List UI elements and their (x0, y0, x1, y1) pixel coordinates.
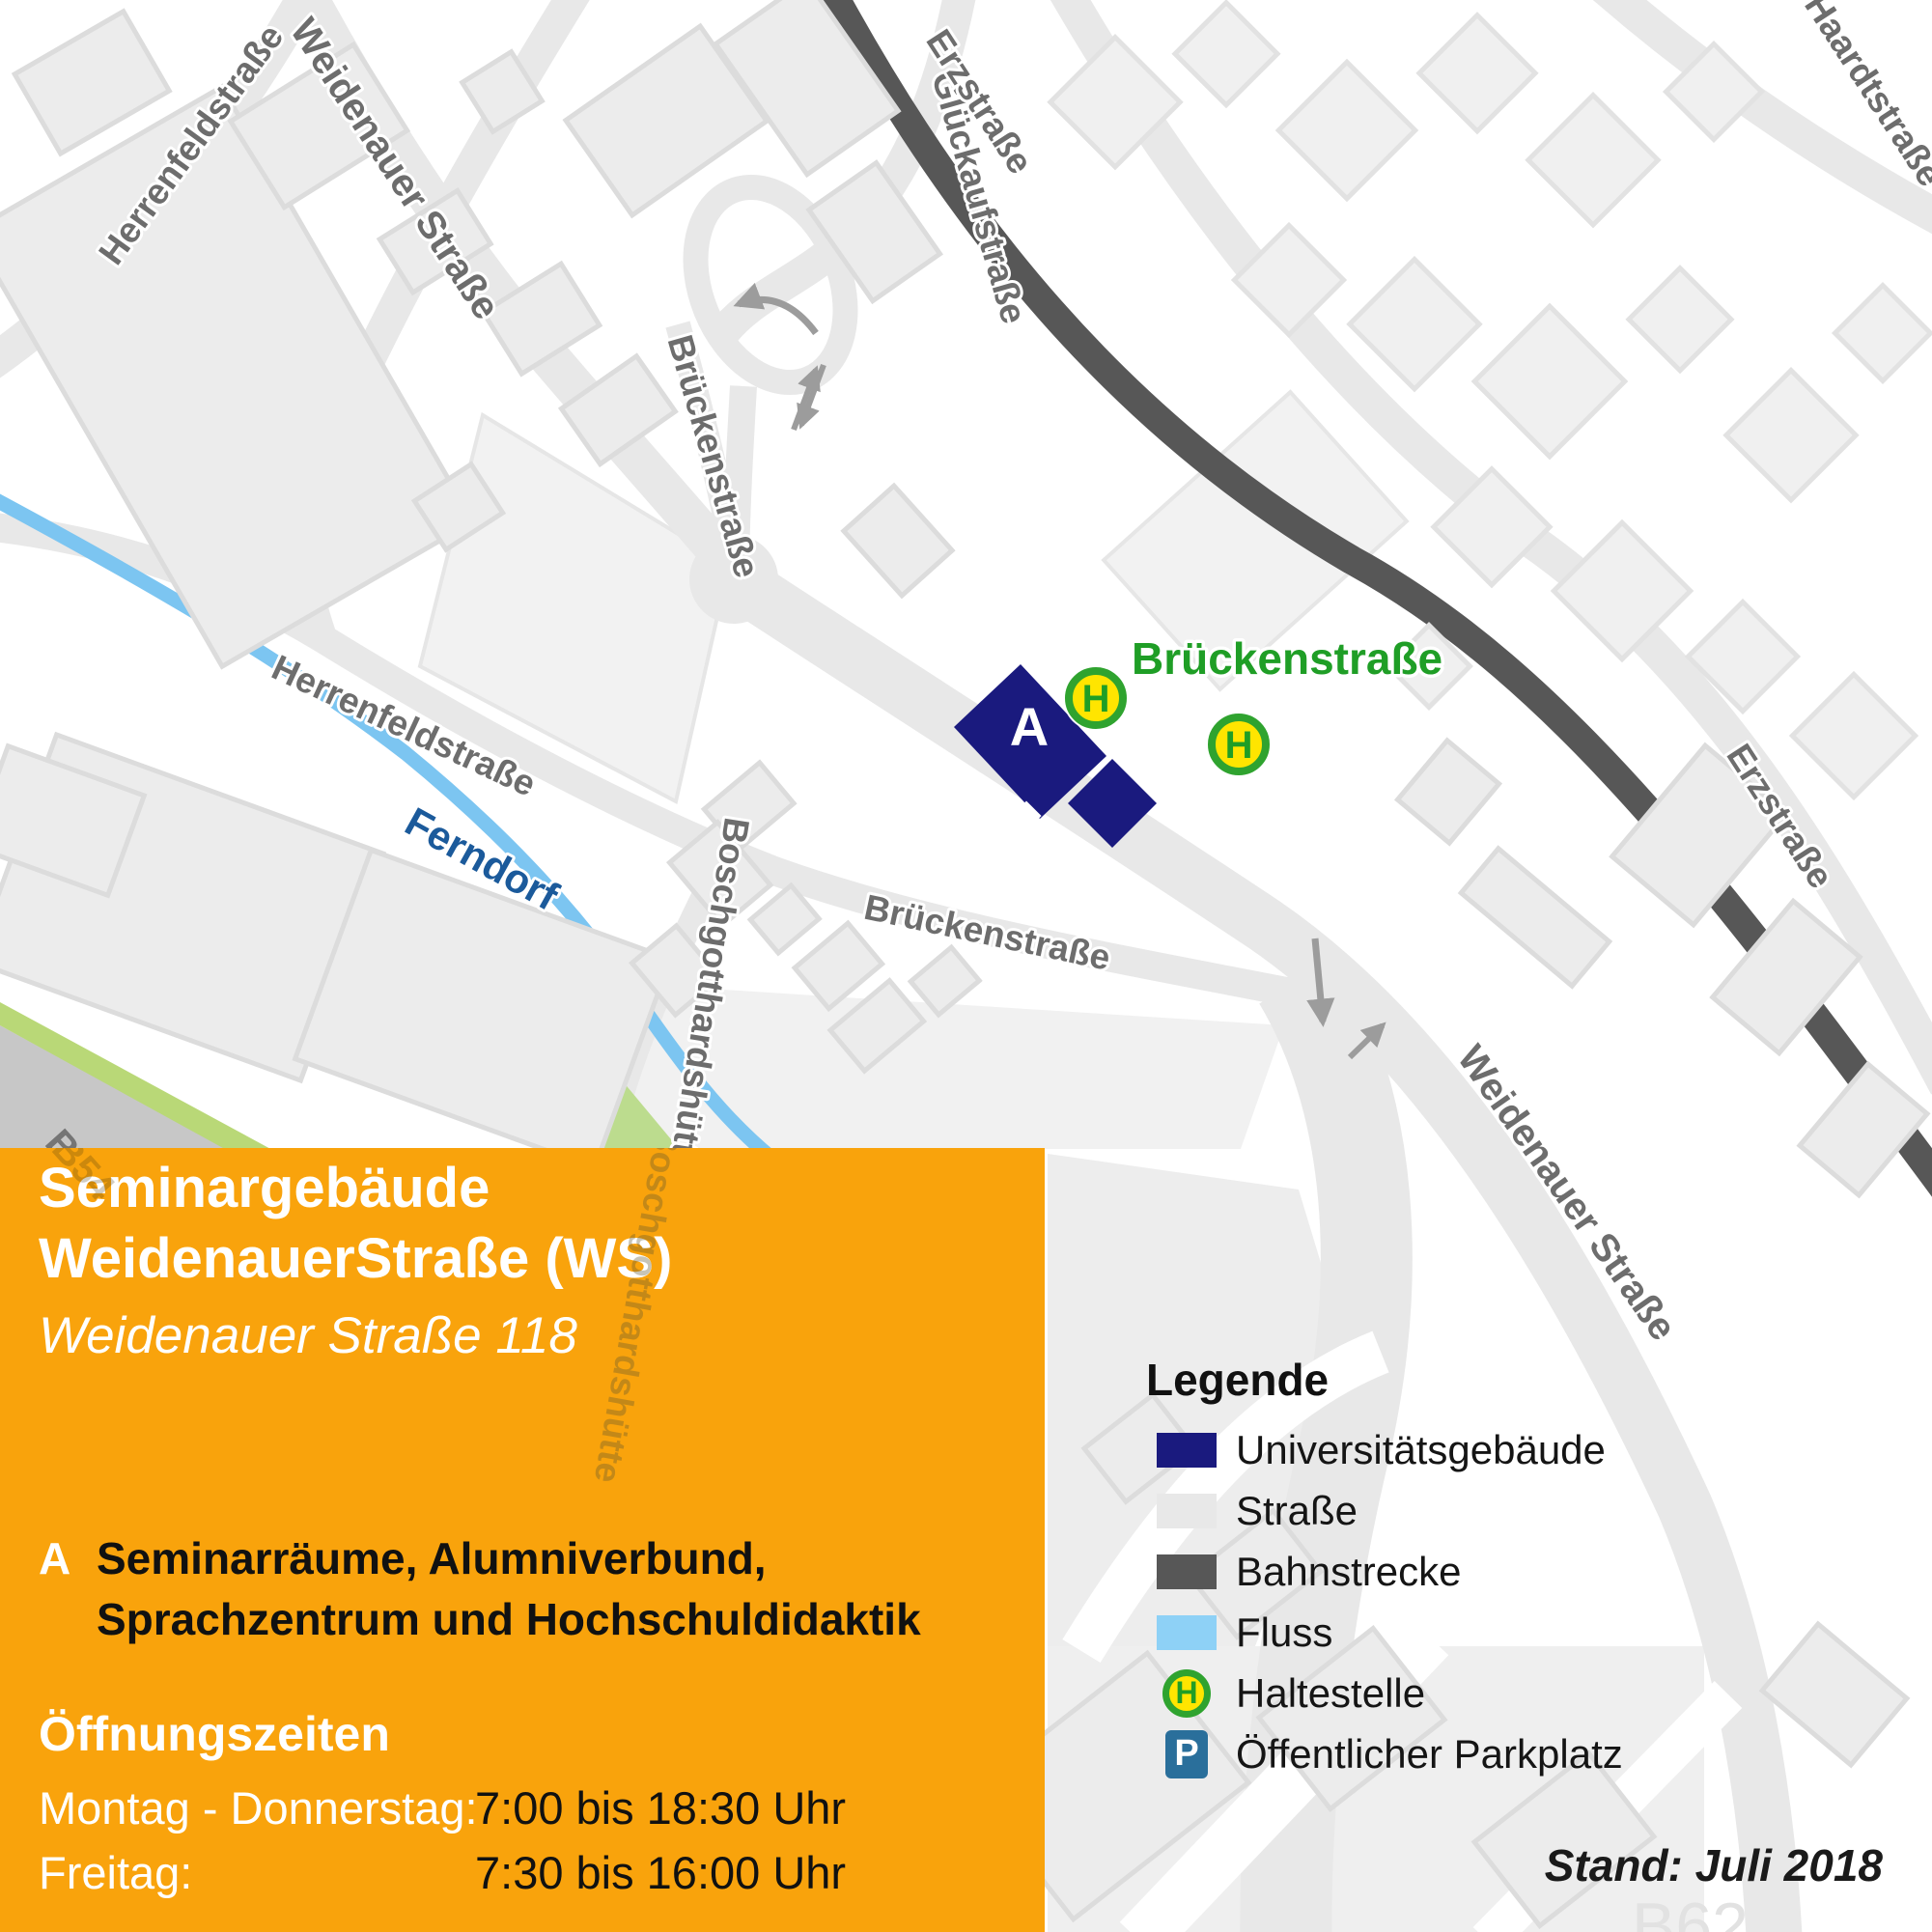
parking-icon: P (1165, 1730, 1208, 1778)
legend-row-university: Universitätsgebäude (1144, 1419, 1907, 1480)
legend-label: Straße (1236, 1488, 1358, 1534)
street-swatch-icon (1157, 1494, 1217, 1528)
legend-label: Fluss (1236, 1610, 1332, 1656)
map-date-stamp: Stand: Juli 2018 (1545, 1839, 1883, 1891)
building-a-marker: A (1010, 696, 1049, 757)
campus-map-page: A Herrenfeldstraße Weidenauer Straße Glü… (0, 0, 1932, 1932)
legend-label: Haltestelle (1236, 1670, 1425, 1717)
watermark-b54: B54 (43, 1148, 123, 1209)
legend-row-street: Straße (1144, 1480, 1907, 1541)
road-number-b62: B62 (1632, 1890, 1749, 1932)
legend-row-river: Fluss (1144, 1602, 1907, 1663)
h-letter: H (1082, 678, 1110, 720)
legend-label: Bahnstrecke (1236, 1549, 1461, 1595)
legend: Legende Universitätsgebäude Straße Bahns… (1144, 1354, 1907, 1784)
legend-row-parking: P Öffentlicher Parkplatz (1144, 1723, 1907, 1784)
legend-label: Öffentlicher Parkplatz (1236, 1731, 1623, 1778)
bus-stop-icon-2: H (1206, 712, 1272, 777)
legend-title: Legende (1146, 1354, 1907, 1406)
legend-row-bus-stop: H Haltestelle (1144, 1663, 1907, 1723)
bus-stop-icon: H (1162, 1669, 1211, 1718)
info-panel: Seminargebäude WeidenauerStraße (WS) Wei… (0, 1148, 1045, 1932)
legend-label: Universitätsgebäude (1236, 1427, 1606, 1473)
h-letter: H (1225, 724, 1253, 767)
university-swatch-icon (1157, 1433, 1217, 1468)
bus-stop-icon-1: H (1063, 665, 1129, 731)
legend-row-rail: Bahnstrecke (1144, 1541, 1907, 1602)
bus-stop-name-label: Brückenstraße (1132, 633, 1442, 684)
river-swatch-icon (1157, 1615, 1217, 1650)
panel-watermark-layer: Boschgotthardshütte B54 (0, 1148, 1045, 1932)
street-label-brueckenstrasse-lower: Brückenstraße (861, 887, 1114, 978)
watermark-boschgotthardshuette: Boschgotthardshütte (587, 1148, 688, 1486)
railway-swatch-icon (1157, 1554, 1217, 1589)
